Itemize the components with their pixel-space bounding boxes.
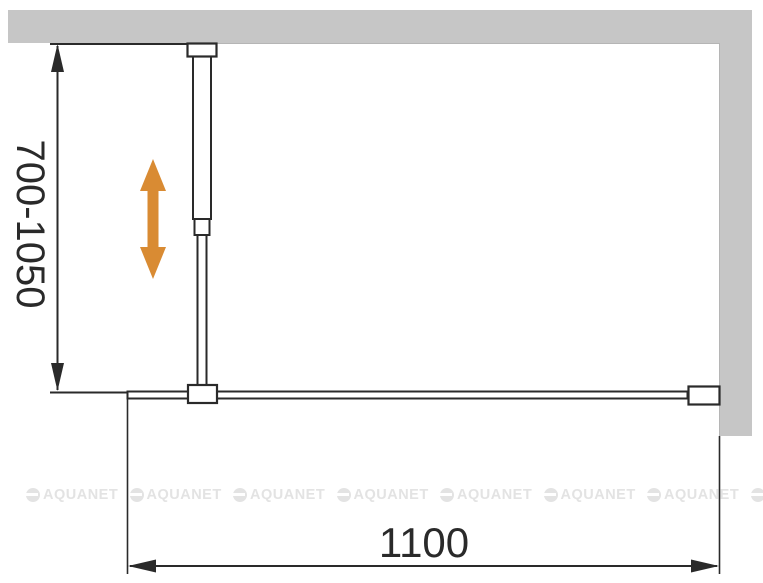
dimension-labels: 700-1050 1100 — [8, 139, 469, 566]
ceiling-bracket — [188, 44, 217, 57]
walls — [8, 10, 752, 436]
height-arrow-up-icon — [51, 44, 64, 72]
adjustable-height-arrow-icon — [140, 159, 166, 279]
height-dimension-label: 700-1050 — [8, 139, 52, 308]
glass-bracket — [188, 385, 217, 403]
wall-edges — [188, 43, 720, 436]
width-arrow-left-icon — [128, 560, 156, 573]
width-arrow-right-icon — [691, 560, 719, 573]
width-dimension-label: 1100 — [379, 519, 469, 566]
diagram-layer: 700-1050 1100 — [0, 0, 763, 583]
wall-right — [719, 10, 752, 436]
dimension-drawing: 700-1050 1100 AQUANET AQUANET AQUANET AQ… — [0, 0, 763, 583]
wall-top — [8, 10, 752, 43]
support-bar-collar — [195, 219, 210, 235]
height-arrow-down-icon — [51, 363, 64, 391]
support-bar-outer-tube — [193, 50, 211, 219]
line-work — [50, 44, 720, 575]
support-bar-inner-tube — [198, 235, 207, 386]
dimension-arrowheads — [51, 44, 719, 573]
wall-bracket — [689, 387, 720, 405]
